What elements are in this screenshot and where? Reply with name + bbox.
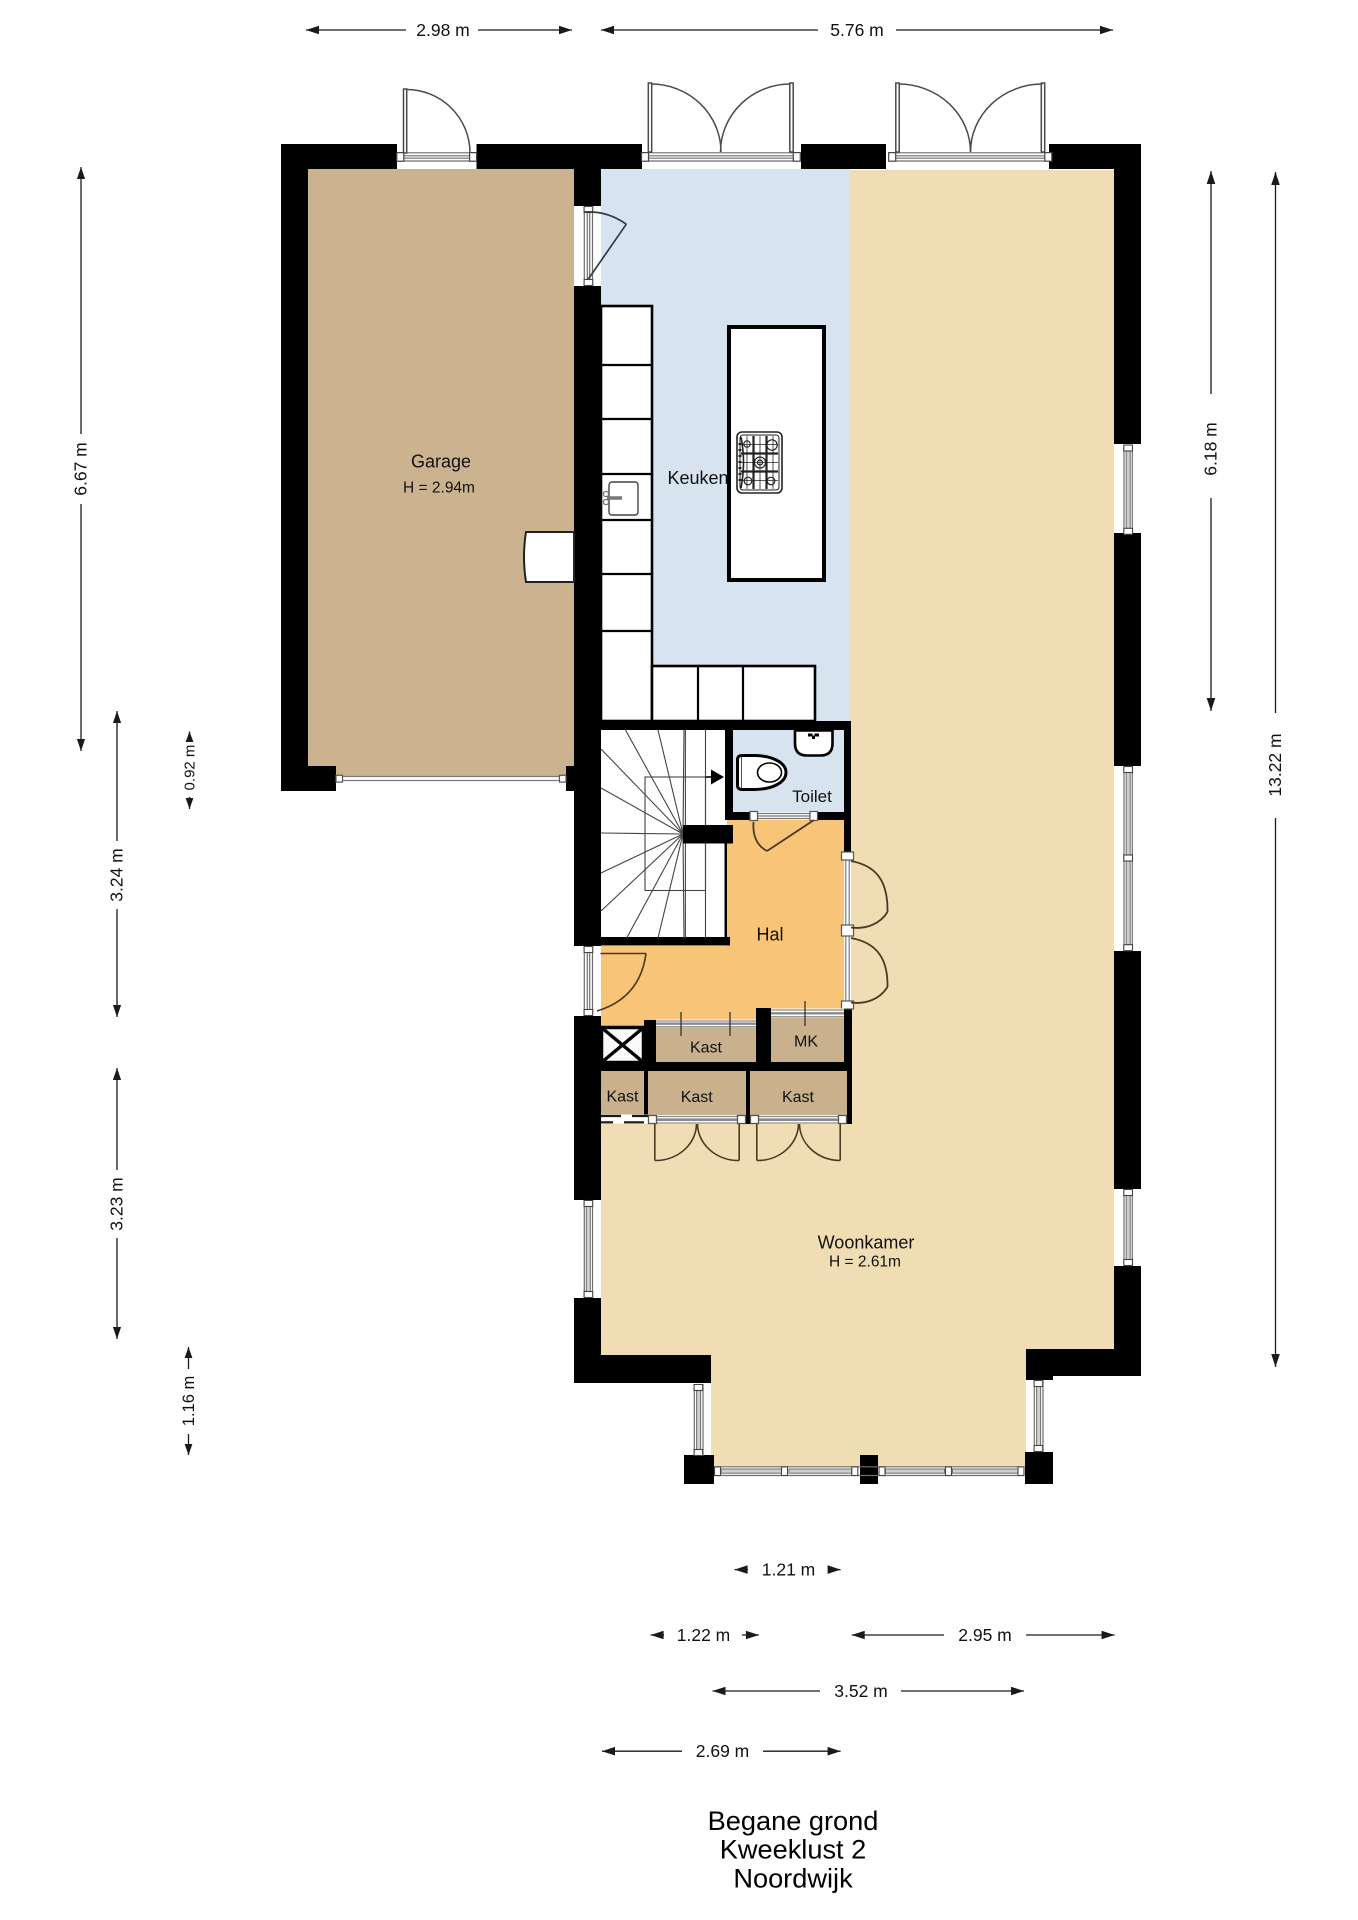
svg-text:MK: MK (794, 1034, 818, 1051)
svg-text:H = 2.61m: H = 2.61m (829, 1254, 901, 1271)
svg-text:Kast: Kast (782, 1089, 815, 1106)
svg-text:Keuken: Keuken (667, 468, 728, 488)
svg-text:3.52 m: 3.52 m (834, 1681, 888, 1701)
svg-text:0.92 m: 0.92 m (182, 745, 199, 791)
svg-text:1.21 m: 1.21 m (762, 1560, 816, 1580)
svg-text:6.67 m: 6.67 m (71, 442, 91, 496)
svg-text:3.24 m: 3.24 m (107, 848, 127, 902)
svg-text:Kast: Kast (681, 1089, 714, 1106)
svg-text:H = 2.94m: H = 2.94m (403, 480, 475, 497)
svg-text:Hal: Hal (756, 925, 783, 945)
svg-text:13.22 m: 13.22 m (1265, 733, 1285, 796)
svg-text:6.18 m: 6.18 m (1201, 422, 1221, 476)
svg-text:Toilet: Toilet (792, 787, 832, 806)
svg-text:Noordwijk: Noordwijk (733, 1863, 853, 1894)
svg-text:Kast: Kast (690, 1040, 723, 1057)
svg-text:2.95 m: 2.95 m (958, 1625, 1012, 1645)
svg-text:2.98 m: 2.98 m (416, 20, 470, 40)
svg-text:2.69 m: 2.69 m (696, 1741, 750, 1761)
svg-text:Kast: Kast (606, 1089, 639, 1106)
svg-text:Kweeklust 2: Kweeklust 2 (720, 1834, 867, 1865)
svg-text:Garage: Garage (411, 452, 471, 472)
svg-text:1.16 m: 1.16 m (180, 1376, 198, 1426)
svg-text:1.22 m: 1.22 m (677, 1625, 731, 1645)
svg-text:Woonkamer: Woonkamer (818, 1233, 915, 1253)
svg-text:5.76 m: 5.76 m (830, 20, 884, 40)
svg-text:3.23 m: 3.23 m (107, 1177, 127, 1231)
svg-text:Begane grond: Begane grond (708, 1805, 879, 1836)
